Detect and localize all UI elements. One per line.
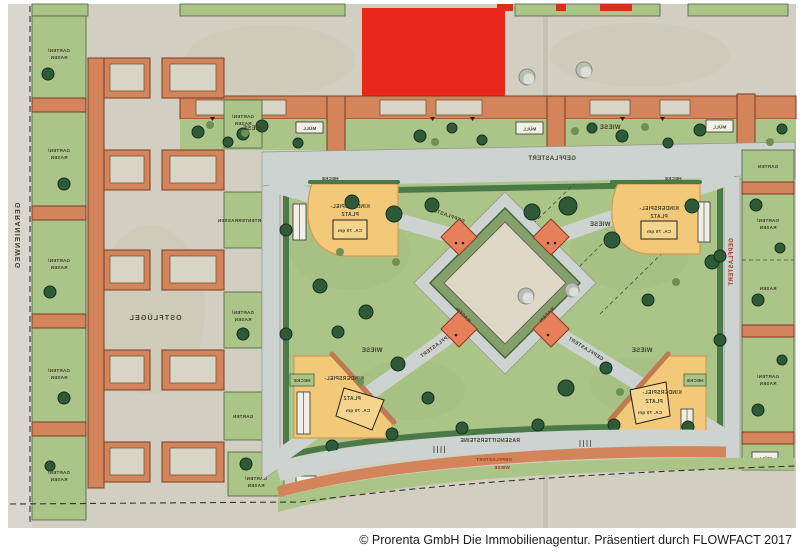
gepflastert-label: GEPFLASTERT [528, 156, 576, 162]
tree-icon [532, 419, 544, 431]
tree-icon [422, 392, 434, 404]
round-feature [523, 293, 534, 304]
north-garden-strip [180, 4, 345, 16]
bush-icon [672, 278, 680, 286]
wiese-label: WIESE [361, 348, 382, 354]
tree-icon [714, 250, 726, 262]
site-plan-page: GERANIENWEG GEPFLASTERT [0, 0, 800, 553]
bush-icon [641, 123, 649, 131]
rasen-label: RASEN [50, 477, 68, 482]
passage-building [737, 94, 755, 150]
muell-label: MÜLL [303, 125, 317, 131]
round-feature [569, 287, 579, 297]
rasen-label: RASEN [759, 381, 777, 386]
tree-icon [616, 130, 628, 142]
tree-icon [391, 357, 405, 371]
tree-icon [752, 404, 764, 416]
garten-label: GARTEN/ [231, 114, 254, 119]
garden-plot [742, 194, 794, 325]
building-wing [104, 150, 224, 190]
building-room [110, 256, 144, 283]
building-spine [88, 58, 104, 488]
building-segment [742, 432, 794, 444]
gartenterrassen-label: GARTENTERRASSEN [217, 218, 268, 223]
north-garden-strip [688, 4, 788, 16]
tree-icon [685, 199, 699, 213]
platz-label: PLATZ [650, 214, 668, 220]
tree-icon [477, 135, 487, 145]
tree-icon [750, 199, 762, 211]
tree-icon [663, 138, 673, 148]
building-wing [104, 442, 224, 482]
west-walkway [262, 184, 280, 480]
garten-label: GARTEN/ [756, 218, 779, 223]
tree-icon [608, 419, 620, 431]
bench-mark [547, 242, 550, 245]
garten-label: GARTEN [232, 414, 253, 419]
gepflastert-label: GEPFLASTERT [729, 238, 735, 286]
bush-icon [336, 248, 344, 256]
tree-icon [42, 68, 54, 80]
wiese-label: WIESE [242, 126, 263, 132]
highlighted-building [362, 8, 505, 96]
building-wing [104, 58, 224, 98]
muell-label: MÜLL [523, 126, 537, 132]
rasen-label: RASEN [50, 155, 68, 160]
building-room [110, 448, 144, 475]
building-room [436, 100, 482, 115]
tree-icon [58, 178, 70, 190]
wiese-label: WIESE [631, 348, 652, 354]
west-garden-column: GARTEN/ RASEN GARTEN/ RASEN GARTEN/ RASE… [32, 16, 86, 520]
garten-label: GARTEN [757, 164, 778, 169]
round-feature [581, 67, 592, 78]
tree-icon [240, 458, 252, 470]
tree-icon [332, 326, 344, 338]
tree-icon [280, 328, 292, 340]
garten-label: GARTEN/ [47, 258, 70, 263]
building-segment [32, 314, 86, 328]
passage-building [327, 96, 345, 151]
gepflastert-label: GEPFLASTERT [476, 457, 512, 462]
building-segment [32, 422, 86, 436]
tree-icon [58, 392, 70, 404]
north-garden-strip [515, 4, 660, 16]
wiese-label: WIESE [599, 125, 620, 131]
paper-mottle [550, 23, 730, 87]
tree-icon [313, 279, 327, 293]
tree-icon [44, 286, 56, 298]
tree-icon [777, 355, 787, 365]
bush-icon [571, 127, 579, 135]
tree-icon [777, 124, 787, 134]
rasen-label: RASEN [759, 286, 777, 291]
area-size-label: CA. 70 qm [638, 410, 662, 415]
kinderspiel-label: KINDERSPIEL- [639, 206, 678, 212]
bench-mark [554, 242, 557, 245]
building-room [110, 356, 144, 383]
copyright-text: © Prorenta GmbH Die Immobilienagentur. P… [359, 533, 792, 547]
platz-label: PLATZ [645, 399, 663, 405]
area-size-label: CA. 70 qm [346, 408, 370, 413]
area-size-label: CA. 70 qm [647, 229, 671, 234]
building-room [590, 100, 630, 115]
kinderspiel-label: KINDERSPIEL- [642, 390, 681, 396]
playground-ne: HECKE KINDERSPIEL- PLATZ CA. 70 qm [612, 176, 710, 254]
courtyard-label: OSTFLÜGEL [128, 313, 181, 322]
tree-icon [558, 380, 574, 396]
building-room [170, 64, 216, 91]
building-room [380, 100, 426, 115]
garten-label: GARTEN/ [47, 48, 70, 53]
tree-icon [293, 138, 303, 148]
north-garden-strip [32, 4, 88, 16]
tree-icon [414, 130, 426, 142]
bush-icon [431, 138, 439, 146]
passage-building [547, 96, 565, 151]
tree-icon [425, 198, 439, 212]
muell-label: MÜLL [713, 124, 727, 130]
hecke-label: HECKE [664, 176, 681, 181]
tree-icon [752, 294, 764, 306]
east-garden-column: GARTEN GARTEN/ RASEN RASEN GARTEN/ RASEN… [742, 150, 794, 470]
tree-icon [237, 328, 249, 340]
tree-icon [223, 137, 233, 147]
tree-icon [359, 305, 373, 319]
north-building-fragment [600, 4, 632, 11]
site-plan: GERANIENWEG GEPFLASTERT [0, 0, 800, 528]
bush-icon [766, 138, 774, 146]
bench-mark [462, 242, 465, 245]
garten-label: GARTEN/ [231, 310, 254, 315]
building-segment [742, 325, 794, 337]
building-room [110, 64, 144, 91]
tree-icon [386, 428, 398, 440]
bench-mark [455, 334, 458, 337]
bench-mark [455, 242, 458, 245]
building-room [110, 156, 144, 183]
tree-icon [604, 232, 620, 248]
hecke-label: HECKE [321, 176, 338, 181]
garten-label: GARTEN/ [47, 470, 70, 475]
tree-icon [456, 422, 468, 434]
tree-icon [524, 204, 540, 220]
building-room [170, 256, 216, 283]
rasengittersteine-label: RASENGITTERSTEINE [460, 438, 520, 444]
tree-icon [775, 243, 785, 253]
building-wing [104, 250, 224, 290]
platz-label: PLATZ [343, 396, 361, 402]
caption-bar: © Prorenta GmbH Die Immobilienagentur. P… [0, 528, 800, 553]
tree-icon [694, 124, 706, 136]
bush-icon [206, 121, 214, 129]
tree-icon [280, 224, 292, 236]
garten-label: GARTEN/ [756, 374, 779, 379]
tree-icon [600, 362, 612, 374]
garten-label: GARTEN/ [47, 368, 70, 373]
building-segment [32, 98, 86, 112]
bush-icon [392, 258, 400, 266]
wiese-label: WIESE [589, 222, 610, 228]
building-segment [742, 182, 794, 194]
wiese-label: WIESE [494, 465, 510, 470]
rasen-label: RASEN [247, 483, 265, 488]
rasen-label: RASEN [234, 317, 252, 322]
north-building-fragment [556, 4, 566, 11]
round-feature [524, 74, 535, 85]
tree-icon [642, 294, 654, 306]
tree-icon [587, 123, 597, 133]
building-room [660, 100, 690, 115]
tree-icon [345, 195, 359, 209]
street-geranienweg: GERANIENWEG [8, 4, 32, 528]
garten-label: GARTEN/ [47, 148, 70, 153]
rasen-label: RASEN [50, 265, 68, 270]
building-room [170, 356, 216, 383]
tree-icon [559, 197, 577, 215]
hecke-label: HECKE [293, 378, 310, 383]
hecke-label: HECKE [686, 378, 703, 383]
rasen-label: RASEN [759, 225, 777, 230]
east-walkway [724, 176, 740, 468]
building-segment [32, 206, 86, 220]
area-size-label: CA. 70 qm [338, 228, 362, 233]
tree-icon [386, 206, 402, 222]
rasen-label: RASEN [50, 55, 68, 60]
street-name-label: GERANIENWEG [15, 203, 22, 270]
platz-label: PLATZ [341, 212, 359, 218]
rasen-label: RASEN [50, 375, 68, 380]
building-room [170, 156, 216, 183]
bush-icon [356, 378, 364, 386]
tree-icon [192, 126, 204, 138]
building-wing [104, 350, 224, 390]
tree-icon [714, 334, 726, 346]
bush-icon [616, 388, 624, 396]
bench-mark [547, 334, 550, 337]
tree-icon [447, 123, 457, 133]
building-room [170, 448, 216, 475]
